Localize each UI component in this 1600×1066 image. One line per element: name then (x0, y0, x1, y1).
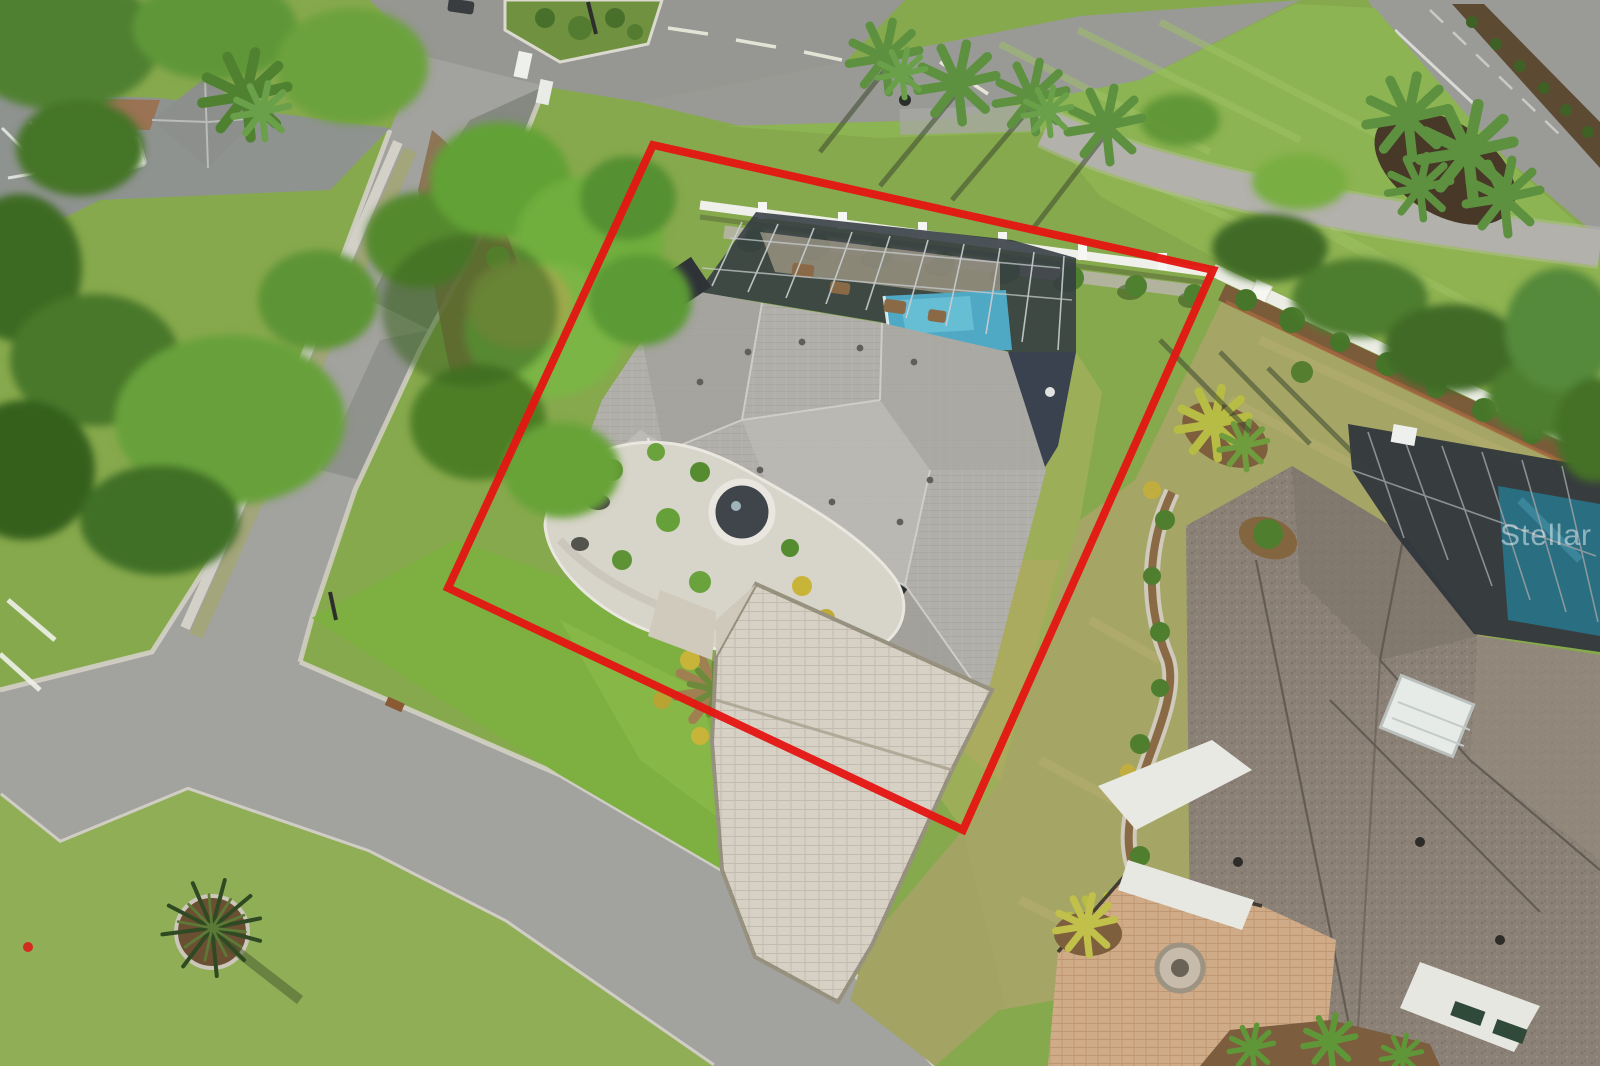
aerial-photo-canvas: Stellar (0, 0, 1600, 1066)
fountain (712, 482, 772, 542)
fire-hydrant (23, 942, 33, 952)
watermark: Stellar (1500, 519, 1592, 552)
grill (1045, 387, 1055, 397)
aerial-photo: Stellar (0, 0, 1600, 1066)
